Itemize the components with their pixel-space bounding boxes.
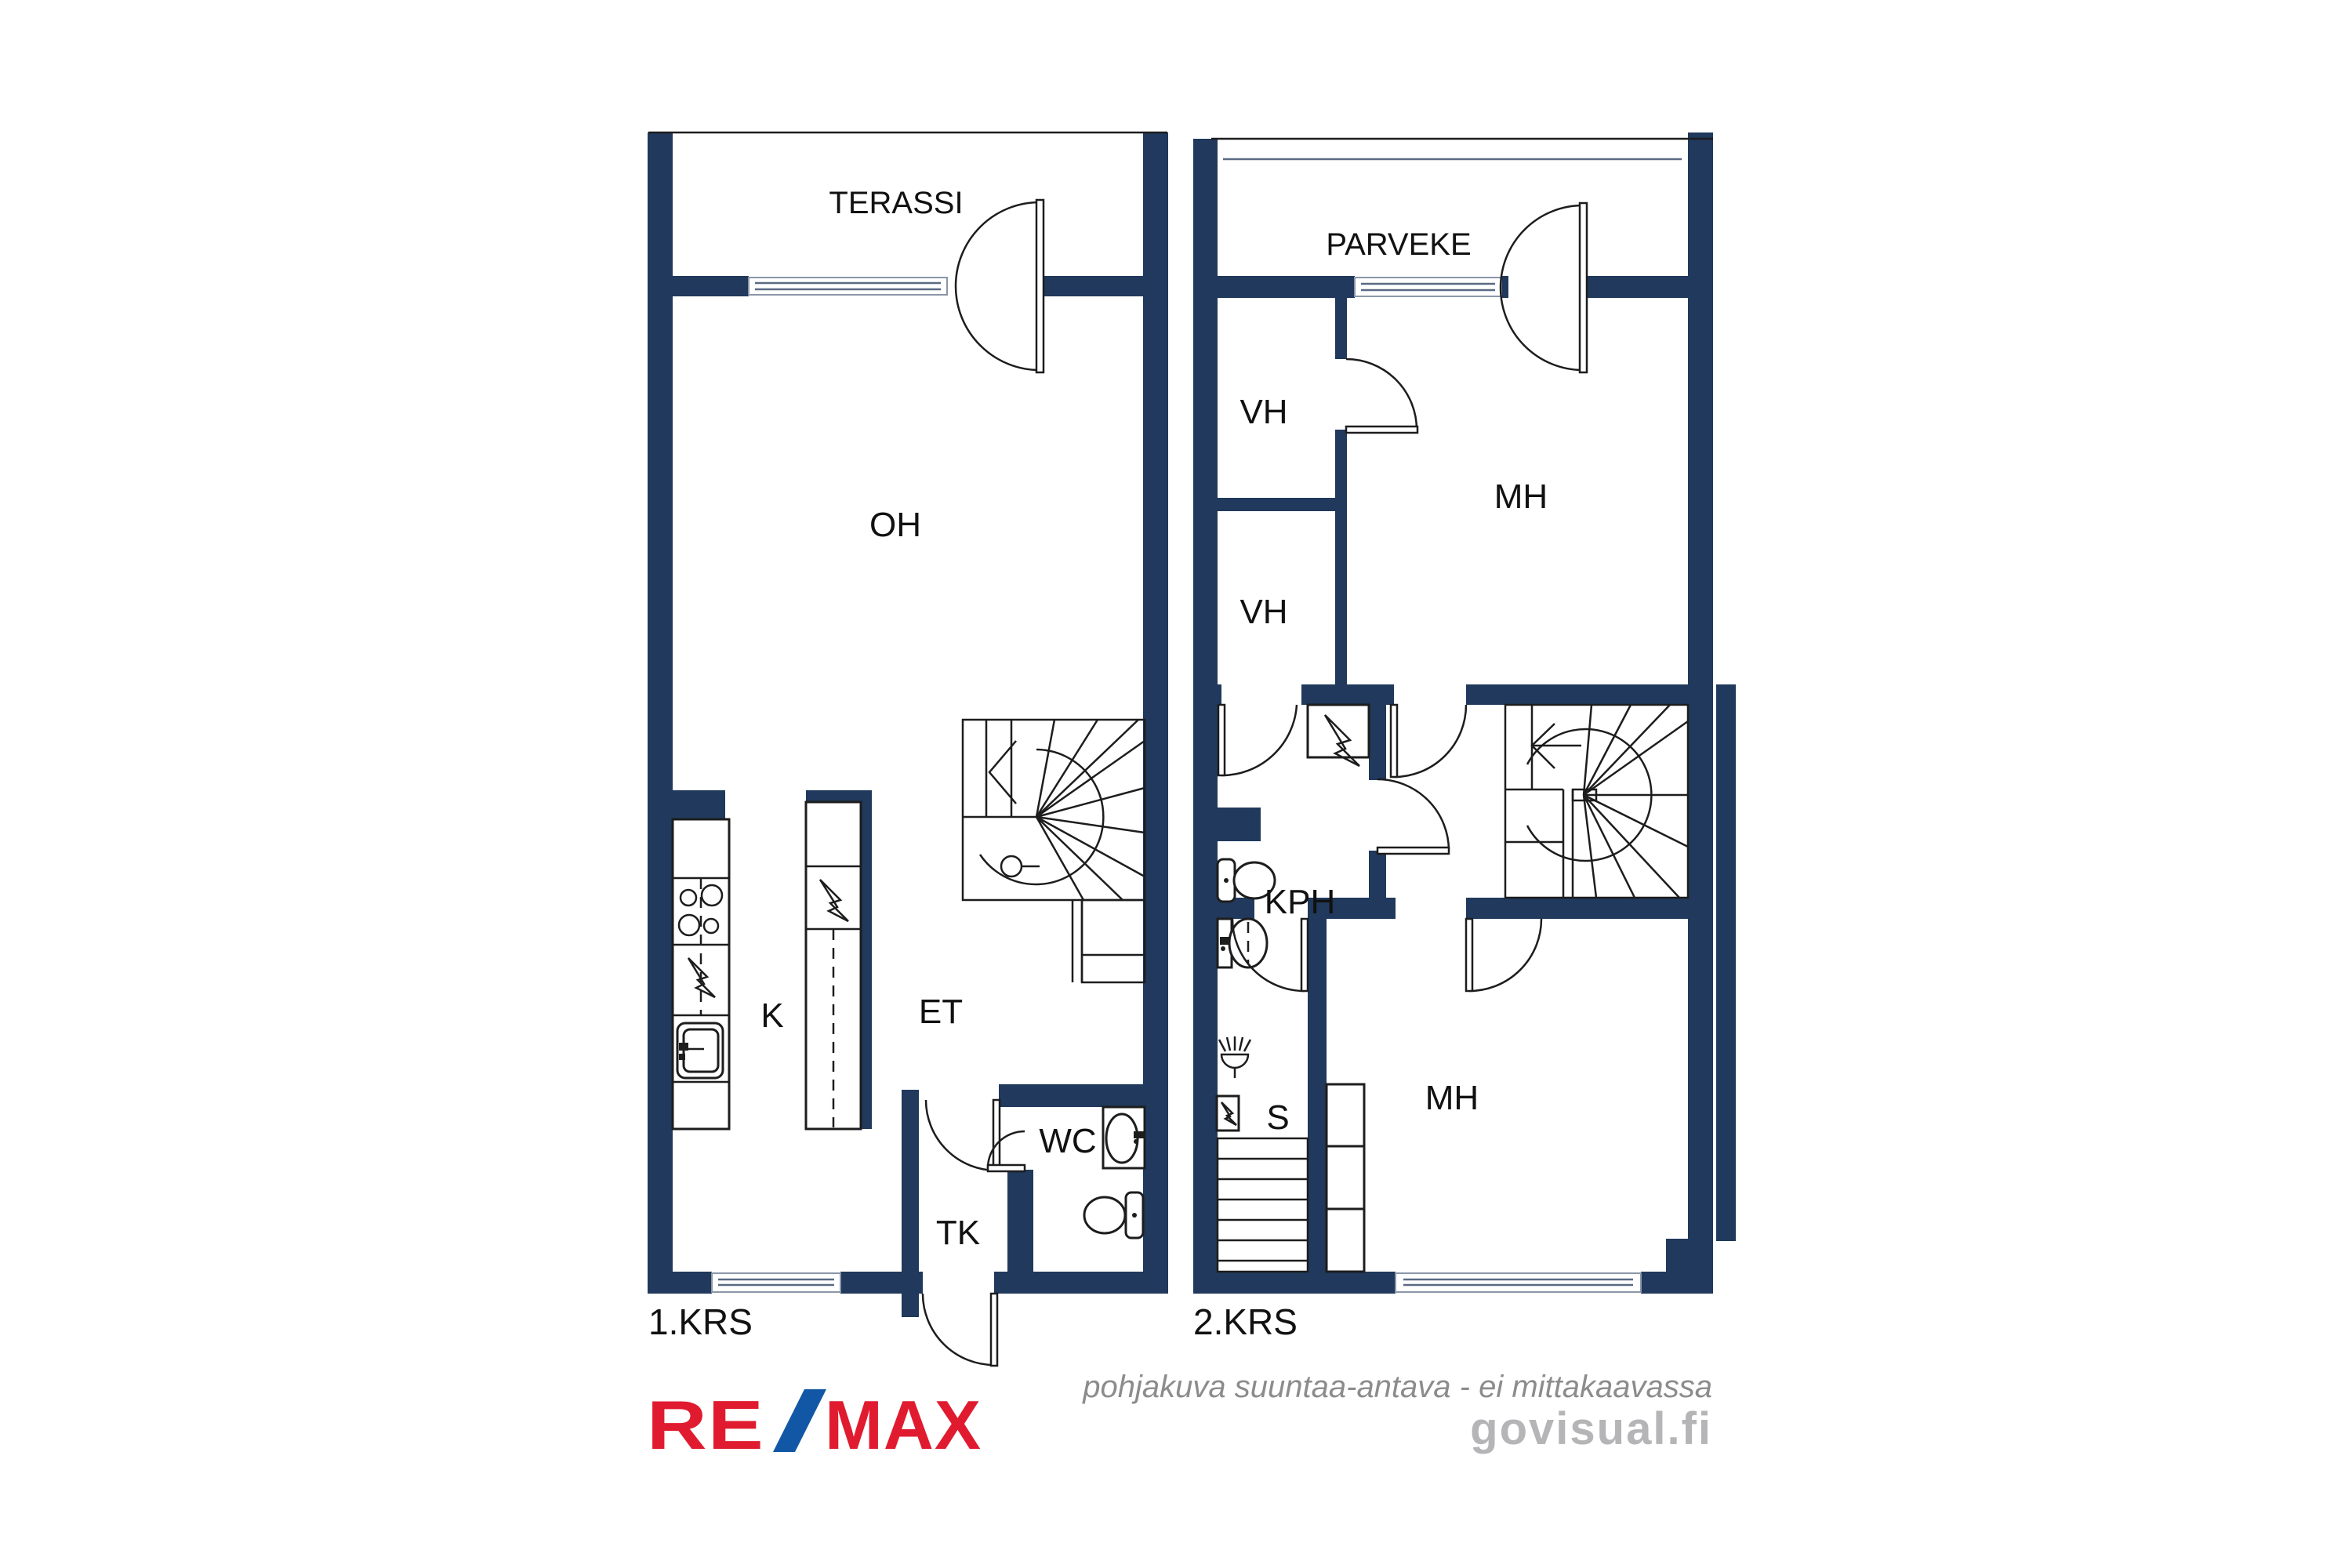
- w1-seg-c: [1466, 684, 1688, 705]
- kitchen-wall-stub: [673, 790, 725, 819]
- terrace-door: [956, 200, 1044, 372]
- f2-wall-balcony-a: [1218, 276, 1355, 298]
- room-label-oh: OH: [869, 506, 921, 544]
- wc-wall-left: [1007, 1170, 1033, 1272]
- balcony-door: [1501, 203, 1587, 372]
- vh1-door: [1346, 359, 1417, 433]
- f1-bottom-window: [712, 1273, 840, 1292]
- stair1-newel: [1001, 856, 1022, 877]
- f1-wall-bottom-c: [994, 1272, 1168, 1294]
- f2-wall-bottom-b: [1641, 1272, 1688, 1294]
- f2-wall-bottom-a: [1193, 1272, 1396, 1294]
- hall-door: [1391, 705, 1466, 777]
- f1-wall-terrace-b: [1036, 276, 1168, 296]
- vh-right-wall-b: [1335, 430, 1347, 684]
- stair2-winder-treads: [1584, 705, 1688, 898]
- vh-right-wall-a: [1335, 298, 1347, 359]
- room-label-mh1: MH: [1494, 477, 1548, 516]
- balcony-window: [1355, 278, 1501, 296]
- room-label-terassi: TERASSI: [829, 186, 963, 220]
- room-label-s: S: [1266, 1098, 1289, 1137]
- wc-wall-stub: [999, 1084, 1025, 1107]
- floorplan-canvas: TERASSI OH K ET WC TK 1.KRS: [0, 0, 2352, 1568]
- kph-wall-stub: [1193, 808, 1261, 841]
- staircase-floor1: [963, 720, 1145, 982]
- room-label-kph: KPH: [1265, 883, 1335, 921]
- f2-wall-balcony-b: [1501, 276, 1508, 298]
- kitchen-fixtures: [673, 790, 872, 1129]
- f2-wall-balcony-c: [1580, 276, 1688, 298]
- vh-divider-wall: [1218, 498, 1335, 511]
- sauna-stove-icon: [1217, 1096, 1239, 1131]
- entry-door: [923, 1294, 997, 1366]
- f2-wall-right: [1688, 132, 1713, 1294]
- floor2-label: 2.KRS: [1193, 1301, 1298, 1342]
- stair1-winder-treads: [1036, 720, 1145, 900]
- mh2-wardrobes: [1327, 1084, 1364, 1272]
- remax-logo-max: MAX: [825, 1386, 982, 1464]
- w1-seg-b: [1301, 684, 1394, 705]
- floor1-plan: TERASSI OH K ET WC TK 1.KRS: [648, 132, 1168, 1366]
- room-label-k: K: [760, 996, 783, 1035]
- room-label-tk: TK: [936, 1214, 980, 1252]
- room-label-vh1: VH: [1240, 393, 1287, 431]
- govisual-watermark: govisual.fi: [1470, 1403, 1712, 1454]
- tk-wall-left: [902, 1090, 919, 1294]
- sauna-right-wall: [1308, 919, 1327, 1272]
- room-label-parveke: PARVEKE: [1326, 227, 1471, 262]
- sink-icon: [677, 1023, 723, 1078]
- wc-wall-top: [1022, 1084, 1145, 1107]
- balcony-door-leaf: [1580, 203, 1587, 372]
- footer: pohjakuva suuntaa-antava - ei mittakaava…: [647, 1370, 1712, 1464]
- room-label-vh2: VH: [1240, 593, 1287, 631]
- v1-seg-a: [1369, 705, 1386, 780]
- w1-seg-a: [1193, 684, 1221, 705]
- f1-wall-terrace-a: [648, 276, 749, 296]
- floor1-label: 1.KRS: [648, 1301, 753, 1342]
- f1-wall-right: [1143, 132, 1168, 1294]
- sauna-fixtures: [1217, 1036, 1308, 1272]
- floor2-plan: PARVEKE VH VH MH KPH S MH 2.KRS: [1193, 132, 1736, 1342]
- sauna-benches: [1218, 1138, 1308, 1272]
- entry-wall-stub: [902, 1294, 919, 1317]
- f2-wall-left: [1193, 139, 1218, 1294]
- mh2-door: [1466, 919, 1541, 991]
- f2-party-wall-strip: [1716, 684, 1736, 1241]
- cabinet-wall-side: [861, 790, 872, 1129]
- disclaimer-text: pohjakuva suuntaa-antava - ei mittakaava…: [1082, 1370, 1712, 1404]
- remax-logo: RE MAX: [647, 1386, 982, 1464]
- wc-sink-icon: [1103, 1107, 1145, 1168]
- f2-bottom-window: [1396, 1273, 1641, 1292]
- kph-door-east: [1377, 779, 1449, 854]
- sauna-ladle-icon: [1219, 1036, 1250, 1078]
- terrace-door-arc: [956, 202, 1040, 370]
- kph-sink-icon: [1218, 919, 1267, 967]
- remax-logo-slash: [773, 1389, 826, 1452]
- f2-wall-step: [1666, 1239, 1688, 1272]
- v1-seg-b: [1369, 851, 1386, 898]
- room-label-mh2: MH: [1425, 1079, 1479, 1117]
- terrace-window: [749, 278, 947, 295]
- electrical-closet: [1308, 705, 1369, 766]
- terrace-door-leaf: [1036, 200, 1044, 372]
- remax-logo-re: RE: [647, 1386, 764, 1464]
- staircase-floor2: [1505, 705, 1688, 898]
- room-label-wc: WC: [1039, 1122, 1096, 1160]
- wc-toilet-icon: [1084, 1192, 1143, 1238]
- balcony-door-arc: [1501, 205, 1583, 370]
- f1-wall-left: [648, 132, 673, 1294]
- w2-seg-c: [1466, 898, 1688, 919]
- f1-wall-bottom-a: [648, 1272, 712, 1294]
- kph-door-west: [1218, 705, 1297, 775]
- room-label-et: ET: [919, 993, 963, 1031]
